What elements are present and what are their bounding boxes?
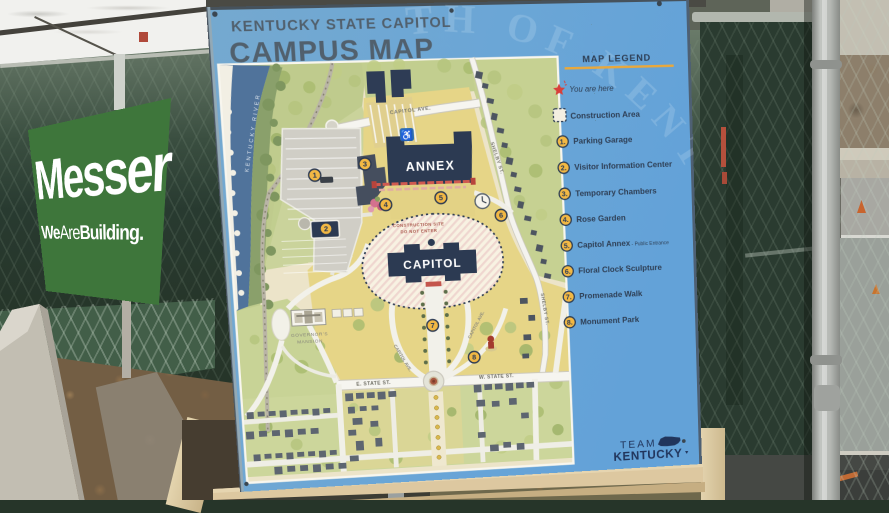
svg-text:4.: 4.	[563, 216, 569, 225]
svg-text:♿: ♿	[400, 129, 413, 142]
svg-text:6.: 6.	[565, 267, 571, 275]
svg-text:1.: 1.	[560, 137, 566, 146]
svg-text:ANNEX: ANNEX	[405, 158, 455, 174]
svg-text:2.: 2.	[561, 164, 567, 173]
svg-text:8.: 8.	[567, 318, 573, 326]
svg-text:7.: 7.	[566, 293, 572, 301]
svg-text:3.: 3.	[562, 190, 568, 199]
svg-text:5.: 5.	[564, 242, 570, 251]
svg-text:Parking Garage: Parking Garage	[573, 135, 632, 146]
svg-text:You are here: You are here	[569, 83, 614, 94]
svg-text:MAP LEGEND: MAP LEGEND	[582, 53, 651, 65]
svg-text:CAPITOL: CAPITOL	[403, 257, 462, 272]
svg-text:Rose Garden: Rose Garden	[576, 213, 626, 224]
